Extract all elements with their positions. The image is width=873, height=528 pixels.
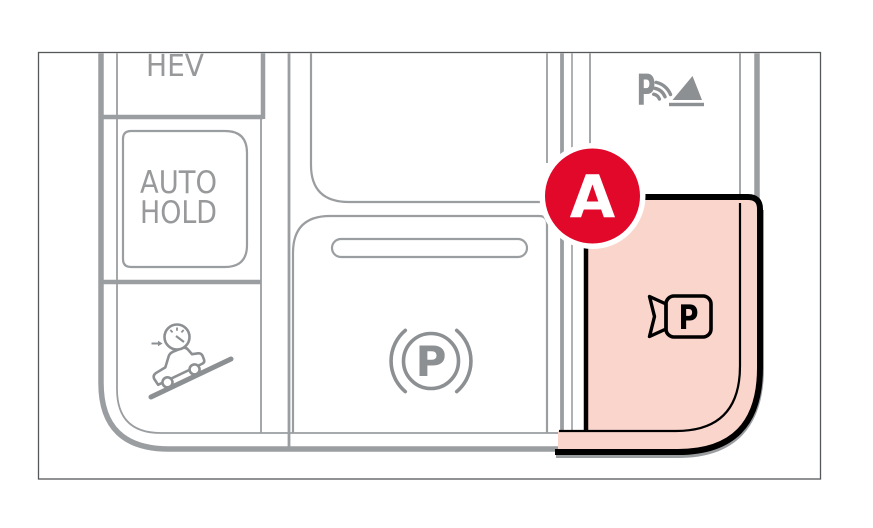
hev-button-label: HEV <box>146 49 204 84</box>
triangle-base-bar <box>669 103 704 106</box>
remote-parking-letter: P <box>679 298 699 338</box>
hev-mode-button[interactable]: HEV <box>146 49 204 84</box>
parking-distance-letter: P <box>637 66 656 116</box>
parking-brake-letter: P <box>416 337 447 386</box>
panel-illustration: HEV AUTO HOLD P <box>0 0 873 528</box>
badge-letter: A <box>570 163 616 232</box>
manual-figure: HEV AUTO HOLD P <box>0 0 873 528</box>
callout-a-badge: A <box>540 143 646 249</box>
auto-hold-label-line2: HOLD <box>140 195 217 231</box>
